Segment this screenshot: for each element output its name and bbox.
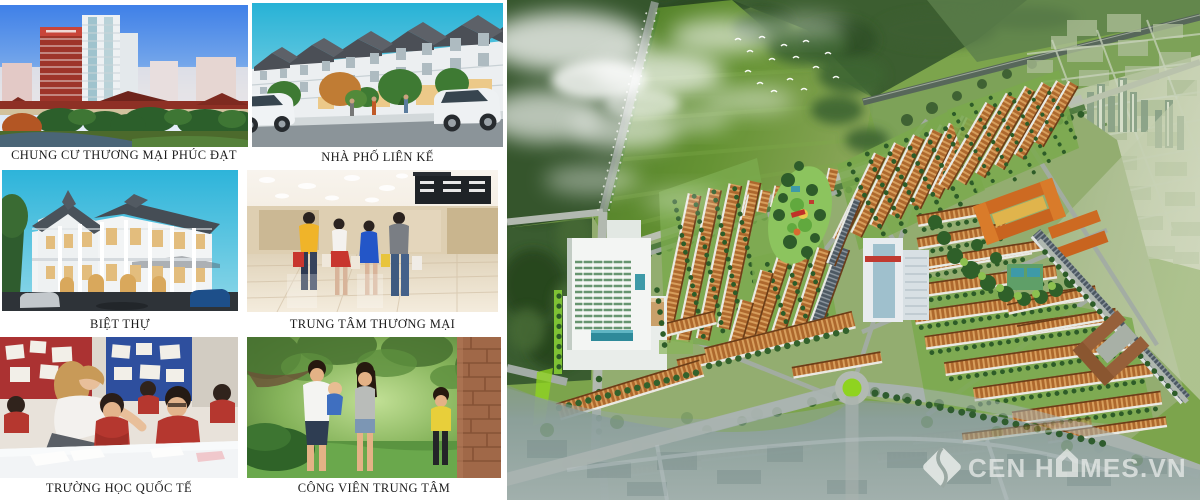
- svg-text:CEN H: CEN H: [968, 453, 1055, 483]
- svg-text:MES.VN: MES.VN: [1080, 453, 1187, 483]
